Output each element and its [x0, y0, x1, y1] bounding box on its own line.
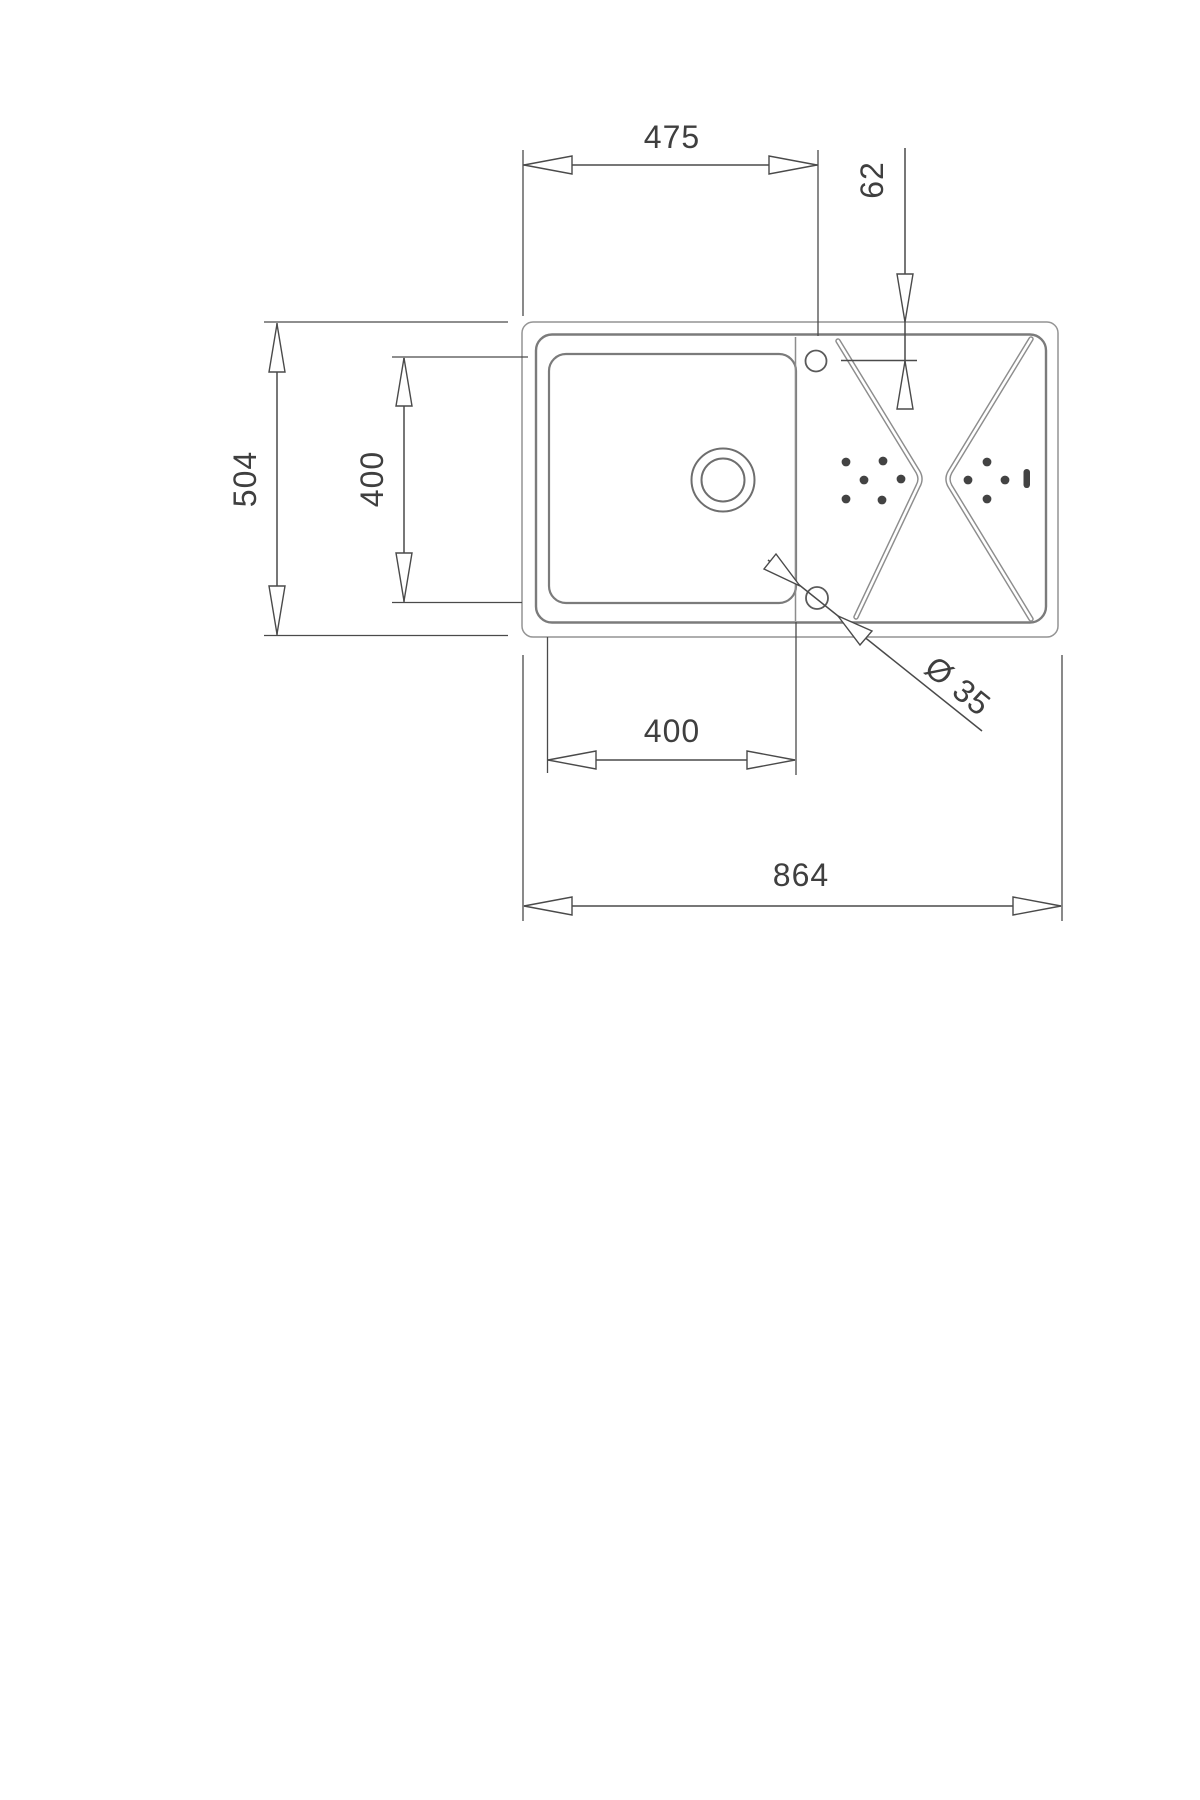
drain-inner-circle — [702, 459, 745, 502]
arrow-right-icon — [747, 751, 795, 769]
dim-label-864: 864 — [773, 857, 829, 893]
arrow-left-icon — [548, 751, 596, 769]
arrow-right-icon — [769, 156, 817, 174]
drainer-holes-right — [964, 458, 1030, 504]
arrow-up-icon — [396, 358, 412, 406]
bowl-drain — [692, 449, 755, 512]
arrow-down-icon — [897, 274, 913, 322]
arrow-diagonal-icon — [838, 616, 872, 645]
dimension-hole-diameter: Ø 35 — [764, 554, 998, 731]
arrow-down-icon — [269, 586, 285, 634]
arrow-diagonal-icon — [764, 554, 800, 586]
dim-label-475: 475 — [644, 119, 700, 155]
arrow-down-icon — [396, 553, 412, 601]
arrow-up-icon — [897, 361, 913, 409]
arrow-up-icon — [269, 324, 285, 372]
dim-label-504: 504 — [227, 451, 263, 507]
drainer-holes-left — [842, 457, 906, 505]
arrow-left-icon — [524, 897, 572, 915]
technical-drawing-page: 475 62 504 400 — [0, 0, 1200, 1800]
dim-label-400-left: 400 — [354, 451, 390, 507]
dim-label-400-bottom: 400 — [644, 713, 700, 749]
sink-dimension-drawing: 475 62 504 400 — [0, 0, 1200, 1800]
arrow-right-icon — [1013, 897, 1061, 915]
drainer-groove-right — [948, 339, 1031, 619]
dim-label-62: 62 — [854, 161, 890, 199]
dimension-bowl-width: 400 — [548, 622, 797, 775]
dimension-bowl-depth: 400 — [354, 357, 528, 603]
sink-outer-edge — [522, 322, 1058, 637]
dimension-top-width: 475 — [523, 119, 818, 336]
sink-bowl — [549, 354, 796, 603]
drainer-overflow-slot — [1024, 469, 1031, 488]
sink-body — [522, 322, 1058, 637]
arrow-left-icon — [524, 156, 572, 174]
tap-hole-top — [806, 351, 827, 372]
